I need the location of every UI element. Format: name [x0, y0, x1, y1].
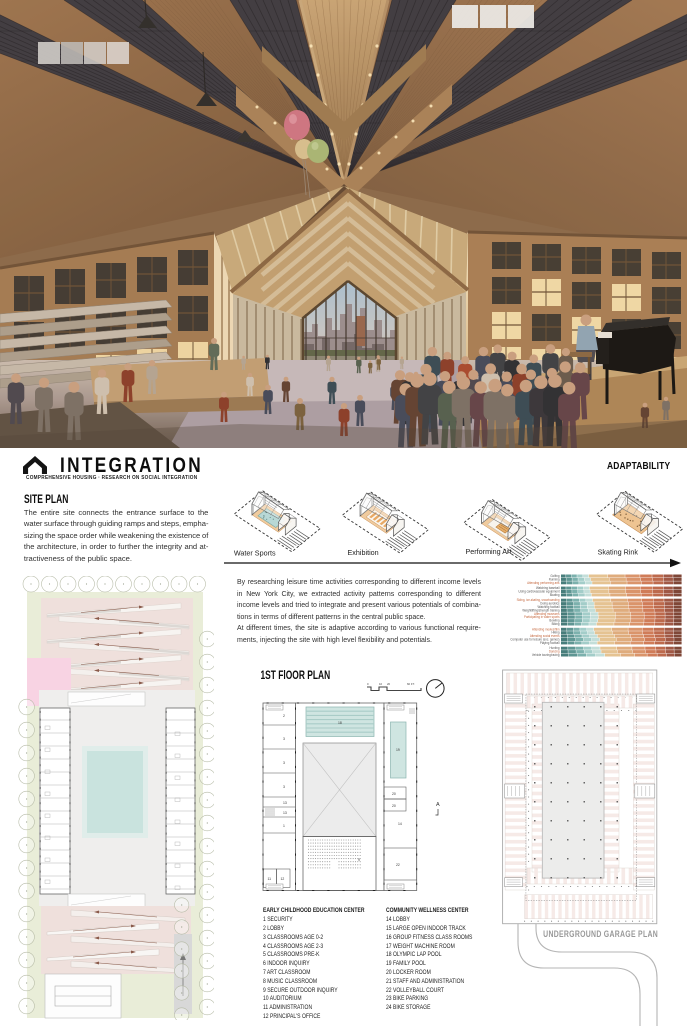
- svg-text:18: 18: [338, 721, 342, 725]
- svg-text:19: 19: [396, 748, 400, 752]
- svg-text:20: 20: [387, 682, 391, 686]
- svg-text:Vehicle touring/racing: Vehicle touring/racing: [532, 653, 560, 657]
- svg-text:Water Sports: Water Sports: [234, 548, 276, 557]
- svg-text:Skating Rink: Skating Rink: [598, 548, 639, 557]
- svg-text:13: 13: [283, 801, 287, 805]
- svg-text:3: 3: [283, 785, 285, 789]
- svg-text:2: 2: [283, 714, 285, 718]
- svg-text:Biking: Biking: [552, 622, 560, 626]
- svg-text:14: 14: [398, 822, 402, 826]
- svg-text:Playing football: Playing football: [540, 641, 560, 645]
- svg-text:3: 3: [283, 737, 285, 741]
- svg-text:20: 20: [392, 792, 396, 796]
- svg-text:A: A: [436, 802, 440, 808]
- svg-text:13: 13: [283, 811, 287, 815]
- svg-text:Exhibition: Exhibition: [348, 548, 379, 557]
- svg-text:3: 3: [283, 761, 285, 765]
- svg-text:1ST FlOOR PLAN: 1ST FlOOR PLAN: [260, 670, 330, 683]
- svg-text:22: 22: [396, 863, 400, 867]
- svg-text:UNDERGROUND GARAGE PLAN: UNDERGROUND GARAGE PLAN: [543, 928, 658, 939]
- svg-text:12: 12: [281, 877, 285, 881]
- svg-text:11: 11: [268, 877, 272, 881]
- svg-text:60 FT.: 60 FT.: [407, 682, 415, 686]
- svg-text:20: 20: [392, 804, 396, 808]
- svg-text:10: 10: [379, 682, 383, 686]
- svg-text:0: 0: [367, 682, 369, 686]
- svg-text:Attending performing arts: Attending performing arts: [527, 581, 560, 585]
- svg-text:1: 1: [283, 824, 285, 828]
- svg-text:Boating: Boating: [550, 593, 560, 597]
- svg-text:9: 9: [358, 858, 360, 862]
- svg-text:Performing Art: Performing Art: [466, 547, 512, 556]
